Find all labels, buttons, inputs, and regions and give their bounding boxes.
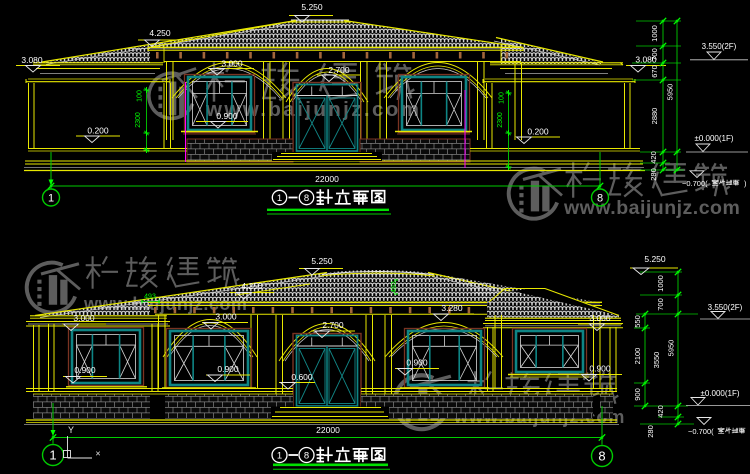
svg-text:900: 900: [633, 388, 642, 401]
svg-text:1: 1: [277, 451, 282, 462]
svg-text:280: 280: [649, 168, 658, 181]
svg-text:2.700: 2.700: [322, 320, 344, 330]
svg-text:2100: 2100: [633, 348, 642, 365]
svg-text:www.baijunjz.com: www.baijunjz.com: [563, 197, 740, 219]
svg-text:0.200: 0.200: [87, 126, 109, 136]
svg-text:420: 420: [649, 151, 658, 164]
svg-text:3.550(2F): 3.550(2F): [708, 303, 743, 312]
svg-text:2300: 2300: [135, 112, 142, 128]
svg-text:5.250: 5.250: [644, 254, 666, 264]
svg-text:3.000: 3.000: [221, 59, 243, 69]
svg-text:5950: 5950: [666, 84, 675, 101]
svg-text:3.080: 3.080: [21, 55, 43, 65]
svg-text:3550: 3550: [652, 352, 661, 369]
svg-text:3.550(2F): 3.550(2F): [702, 42, 737, 51]
svg-text:420: 420: [656, 405, 665, 418]
svg-text:493: 493: [144, 294, 156, 301]
svg-text:±0.000(1F): ±0.000(1F): [694, 134, 733, 143]
svg-text:0.900: 0.900: [216, 111, 238, 121]
svg-text:100: 100: [137, 90, 144, 102]
svg-text:670: 670: [650, 65, 659, 78]
svg-text:1: 1: [277, 193, 282, 204]
svg-text:493: 493: [391, 281, 398, 293]
svg-text:1000: 1000: [650, 25, 659, 42]
svg-text:3.000: 3.000: [589, 313, 611, 323]
svg-text:3.280: 3.280: [441, 303, 463, 313]
svg-text:0.200: 0.200: [527, 127, 549, 137]
svg-text:5950: 5950: [667, 340, 676, 357]
svg-text:2300: 2300: [497, 112, 504, 128]
svg-text:1: 1: [48, 192, 54, 204]
svg-text:5.250: 5.250: [311, 256, 333, 266]
svg-text:8: 8: [597, 192, 603, 204]
svg-text:700: 700: [656, 298, 665, 311]
svg-text:0.600: 0.600: [291, 372, 313, 382]
svg-text:2.700: 2.700: [328, 65, 350, 75]
svg-text:×: ×: [95, 449, 100, 459]
svg-text:4.250: 4.250: [149, 28, 171, 38]
svg-text:4.250: 4.250: [241, 281, 263, 291]
svg-text:5.250: 5.250: [301, 2, 323, 12]
svg-text:8: 8: [598, 449, 605, 464]
svg-text:3.000: 3.000: [73, 313, 95, 323]
svg-text:−0.700(: −0.700(: [682, 179, 708, 188]
svg-text:3.000: 3.000: [215, 312, 237, 322]
svg-text:1: 1: [49, 448, 56, 463]
svg-text:±0.000(1F): ±0.000(1F): [700, 389, 739, 398]
svg-text:0.900: 0.900: [589, 364, 611, 374]
svg-text:8: 8: [304, 451, 309, 462]
svg-text:0.900: 0.900: [217, 364, 239, 374]
svg-text:2880: 2880: [650, 108, 659, 125]
svg-text:280: 280: [646, 425, 655, 438]
svg-text:22000: 22000: [316, 425, 340, 435]
svg-text:550: 550: [633, 315, 642, 328]
svg-text:0.900: 0.900: [406, 358, 428, 368]
svg-text:1000: 1000: [656, 275, 665, 292]
svg-text:700: 700: [650, 48, 659, 61]
svg-text:−0.700(: −0.700(: [688, 427, 714, 436]
svg-text:22000: 22000: [315, 174, 339, 184]
svg-text:0.900: 0.900: [74, 365, 96, 375]
svg-text:Y: Y: [68, 425, 74, 435]
svg-text:100: 100: [499, 92, 506, 104]
svg-text:8: 8: [304, 193, 309, 204]
